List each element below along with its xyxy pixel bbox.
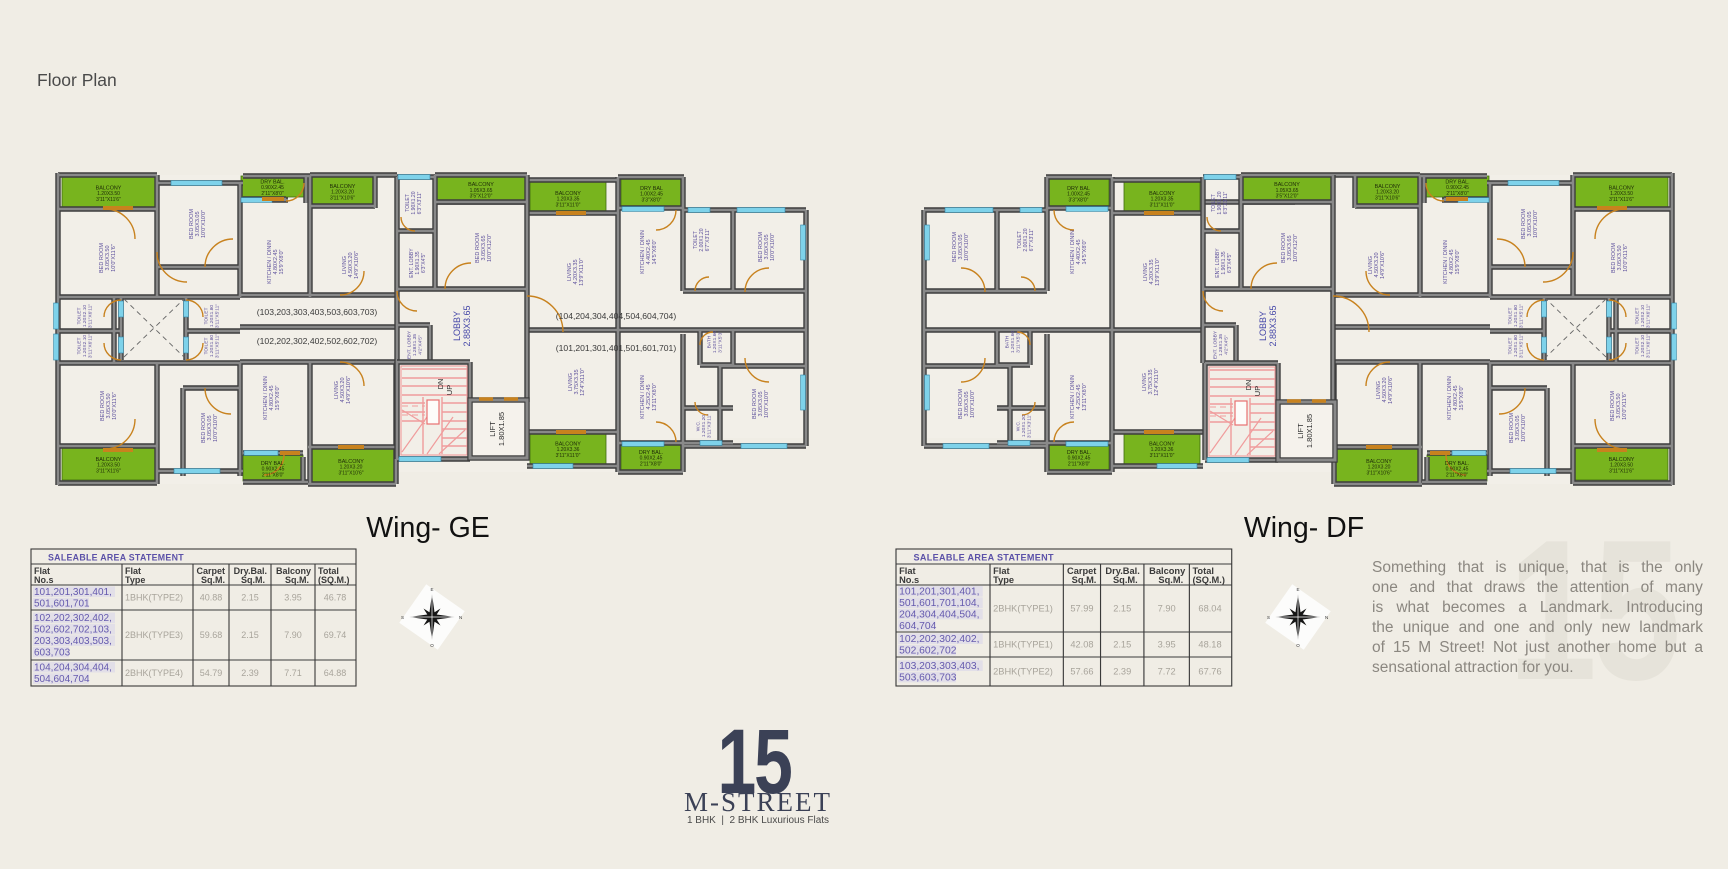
- svg-text:TOILET: TOILET: [76, 307, 82, 324]
- svg-text:1.80X1.85: 1.80X1.85: [1305, 414, 1314, 448]
- svg-text:LIFT: LIFT: [1296, 423, 1305, 439]
- svg-text:7.90: 7.90: [1158, 604, 1176, 614]
- svg-text:10'0"X10'0": 10'0"X10'0": [213, 414, 219, 442]
- svg-text:LOBBY: LOBBY: [1258, 311, 1268, 341]
- svg-text:TOILET: TOILET: [1634, 307, 1640, 324]
- svg-text:No.s: No.s: [899, 575, 919, 585]
- svg-text:3'11"X5'11": 3'11"X5'11": [215, 304, 221, 328]
- svg-text:3.95: 3.95: [1158, 640, 1176, 650]
- svg-text:LIVING: LIVING: [1143, 263, 1149, 281]
- svg-text:BED ROOM: BED ROOM: [1509, 413, 1515, 443]
- svg-text:3'11"X11'0": 3'11"X11'0": [556, 453, 581, 459]
- svg-text:3'11"X11'6": 3'11"X11'6": [96, 468, 121, 474]
- svg-text:3.05X3.05: 3.05X3.05: [764, 234, 770, 259]
- svg-text:DN: DN: [1244, 380, 1253, 391]
- svg-text:3.05X3.50: 3.05X3.50: [105, 245, 111, 270]
- svg-text:BED ROOM: BED ROOM: [100, 391, 106, 421]
- svg-text:1.20X2.10: 1.20X2.10: [82, 305, 88, 328]
- svg-text:2'11"X8'0": 2'11"X8'0": [1446, 472, 1469, 478]
- svg-text:3'11"X6'11": 3'11"X6'11": [88, 334, 94, 358]
- svg-text:69.74: 69.74: [324, 630, 347, 640]
- svg-text:3.05X3.50: 3.05X3.50: [1617, 245, 1623, 270]
- svg-text:67.76: 67.76: [1198, 667, 1221, 677]
- svg-text:3'11"X3'11": 3'11"X3'11": [1027, 414, 1033, 438]
- svg-text:SALEABLE AREA STATEMENT: SALEABLE AREA STATEMENT: [48, 553, 184, 563]
- svg-text:501,601,701,104,: 501,601,701,104,: [899, 598, 979, 609]
- svg-text:4'2"X4'5": 4'2"X4'5": [1224, 335, 1230, 355]
- svg-text:14'9"X10'6": 14'9"X10'6": [354, 251, 360, 279]
- svg-text:13'11"X8'0": 13'11"X8'0": [1082, 383, 1088, 411]
- svg-text:12'4"X11'0": 12'4"X11'0": [580, 368, 586, 396]
- svg-text:6'7"X3'11": 6'7"X3'11": [1029, 228, 1035, 251]
- svg-text:12'4"X11'0": 12'4"X11'0": [1154, 368, 1160, 396]
- svg-text:3'11"X10'6": 3'11"X10'6": [338, 470, 363, 476]
- svg-text:10'0"X10'0": 10'0"X10'0": [770, 233, 776, 261]
- svg-text:1.20X1.20: 1.20X1.20: [701, 415, 707, 438]
- svg-text:BED ROOM: BED ROOM: [201, 413, 207, 443]
- svg-text:57.99: 57.99: [1070, 604, 1093, 614]
- svg-text:13'9"X11'0": 13'9"X11'0": [1155, 258, 1161, 286]
- svg-text:4.80X2.45: 4.80X2.45: [1453, 385, 1459, 410]
- svg-text:1.20X2.10: 1.20X2.10: [1640, 305, 1646, 328]
- svg-text:2.39: 2.39: [241, 668, 259, 678]
- svg-text:14'9"X10'6": 14'9"X10'6": [346, 376, 352, 404]
- svg-text:TOILET: TOILET: [1507, 307, 1513, 324]
- svg-text:3'11"X11'0": 3'11"X11'0": [556, 202, 581, 208]
- svg-text:2BHK(TYPE1): 2BHK(TYPE1): [993, 604, 1053, 614]
- svg-text:2'11"X8'0": 2'11"X8'0": [1068, 461, 1091, 467]
- svg-text:10'0"X11'6": 10'0"X11'6": [1623, 244, 1629, 272]
- svg-text:3.05X3.65: 3.05X3.65: [481, 235, 487, 260]
- svg-text:1.20X1.60: 1.20X1.60: [712, 331, 718, 354]
- svg-text:LIVING: LIVING: [1376, 381, 1382, 399]
- svg-text:3'11"X5'11": 3'11"X5'11": [215, 334, 221, 358]
- svg-text:3'5"X12'0": 3'5"X12'0": [470, 194, 493, 200]
- svg-text:N: N: [1325, 615, 1328, 620]
- svg-text:1BHK(TYPE1): 1BHK(TYPE1): [993, 640, 1053, 650]
- svg-text:10'0"X10'0": 10'0"X10'0": [764, 390, 770, 418]
- svg-text:14'9"X10'6": 14'9"X10'6": [1388, 376, 1394, 404]
- svg-text:4.40X2.45: 4.40X2.45: [646, 239, 652, 264]
- svg-text:2.15: 2.15: [241, 630, 259, 640]
- svg-text:E: E: [1296, 587, 1299, 592]
- svg-text:1.20X1.60: 1.20X1.60: [1010, 331, 1016, 354]
- svg-text:1.80X1.85: 1.80X1.85: [497, 412, 506, 446]
- svg-text:13'11"X8'0": 13'11"X8'0": [652, 383, 658, 411]
- svg-text:3.05X3.05: 3.05X3.05: [207, 415, 213, 440]
- svg-text:KITCHEN / DININ: KITCHEN / DININ: [1070, 230, 1076, 274]
- svg-text:501,601,701: 501,601,701: [34, 598, 90, 609]
- svg-text:10'0"X10'0": 10'0"X10'0": [1533, 210, 1539, 238]
- svg-text:Sq.M.: Sq.M.: [285, 575, 309, 585]
- svg-text:4.50X3.20: 4.50X3.20: [1382, 377, 1388, 402]
- svg-text:(101,201,301,401,501,601,701): (101,201,301,401,501,601,701): [556, 343, 677, 353]
- svg-text:4.25X2.45: 4.25X2.45: [646, 384, 652, 409]
- svg-text:Sq.M.: Sq.M.: [1158, 575, 1183, 585]
- svg-text:3'11"X10'6": 3'11"X10'6": [330, 195, 355, 201]
- svg-text:6'7"X3'11": 6'7"X3'11": [705, 228, 711, 251]
- svg-text:3'11"X6'11": 3'11"X6'11": [1646, 304, 1652, 328]
- svg-text:KITCHEN / DININ: KITCHEN / DININ: [263, 376, 269, 420]
- svg-text:3'11"X5'11": 3'11"X5'11": [1519, 304, 1525, 328]
- svg-text:3.05X3.05: 3.05X3.05: [1527, 211, 1533, 236]
- svg-text:48.18: 48.18: [1198, 640, 1221, 650]
- svg-text:10'0"X10'0": 10'0"X10'0": [970, 390, 976, 418]
- svg-text:502,602,702: 502,602,702: [899, 646, 957, 657]
- svg-text:3'11"X3'11": 3'11"X3'11": [707, 414, 713, 438]
- svg-text:2.15: 2.15: [1113, 604, 1131, 614]
- svg-text:103,203,303,403,: 103,203,303,403,: [899, 661, 979, 672]
- svg-text:ENT. LOBBY: ENT. LOBBY: [1212, 330, 1218, 359]
- svg-text:No.s: No.s: [34, 575, 54, 585]
- svg-text:4.20X3.35: 4.20X3.35: [1149, 259, 1155, 284]
- svg-text:LIVING: LIVING: [342, 256, 348, 274]
- svg-text:3'11"X10'6": 3'11"X10'6": [1366, 470, 1391, 476]
- svg-text:W.C.: W.C.: [1015, 421, 1021, 432]
- svg-text:102,202,302,402,: 102,202,302,402,: [34, 613, 112, 624]
- svg-text:1.20X2.10: 1.20X2.10: [82, 335, 88, 358]
- svg-text:2BHK(TYPE2): 2BHK(TYPE2): [993, 667, 1053, 677]
- svg-text:UP: UP: [1253, 386, 1262, 396]
- svg-text:O: O: [430, 643, 434, 648]
- svg-text:6'3"X3'11": 6'3"X3'11": [1223, 191, 1229, 214]
- svg-text:TOILET: TOILET: [203, 337, 209, 354]
- svg-text:14'5"X8'0": 14'5"X8'0": [652, 239, 658, 264]
- svg-text:1.20X2.10: 1.20X2.10: [1640, 335, 1646, 358]
- svg-text:UP: UP: [445, 385, 454, 395]
- svg-text:LOBBY: LOBBY: [452, 311, 462, 341]
- svg-text:KITCHEN / DININ: KITCHEN / DININ: [1447, 376, 1453, 420]
- svg-text:1.28X1.35: 1.28X1.35: [412, 334, 418, 357]
- svg-text:4.80X2.45: 4.80X2.45: [273, 249, 279, 274]
- svg-text:64.88: 64.88: [324, 668, 347, 678]
- svg-text:10'0"X11'6": 10'0"X11'6": [1622, 392, 1628, 420]
- svg-text:3.75X3.35: 3.75X3.35: [1148, 369, 1154, 394]
- svg-text:O: O: [1296, 643, 1300, 648]
- svg-text:3'5"X12'0": 3'5"X12'0": [1276, 194, 1299, 200]
- svg-text:7.72: 7.72: [1158, 667, 1176, 677]
- svg-text:3'11"X11'0": 3'11"X11'0": [1150, 453, 1175, 459]
- svg-text:LIVING: LIVING: [567, 263, 573, 281]
- svg-text:3'11"X11'0": 3'11"X11'0": [1150, 202, 1175, 208]
- svg-text:KITCHEN / DININ: KITCHEN / DININ: [1443, 240, 1449, 284]
- svg-text:BATH: BATH: [1004, 335, 1010, 348]
- svg-text:4.80X2.45: 4.80X2.45: [269, 385, 275, 410]
- svg-text:2'11"X8'0": 2'11"X8'0": [1446, 191, 1469, 197]
- svg-text:1.20X1.80: 1.20X1.80: [209, 335, 215, 358]
- svg-text:7.71: 7.71: [284, 668, 302, 678]
- svg-text:(104,204,304,404,504,604,704): (104,204,304,404,504,604,704): [556, 311, 677, 321]
- svg-text:604,704: 604,704: [899, 621, 937, 632]
- svg-text:10'0"X11'6": 10'0"X11'6": [111, 244, 117, 272]
- svg-text:203,303,403,503,: 203,303,403,503,: [34, 636, 112, 647]
- svg-text:3'11"X10'6": 3'11"X10'6": [1375, 195, 1400, 201]
- svg-text:BED ROOM: BED ROOM: [1281, 233, 1287, 263]
- svg-text:BED ROOM: BED ROOM: [1611, 243, 1617, 273]
- svg-text:2BHK(TYPE4): 2BHK(TYPE4): [125, 668, 183, 678]
- svg-text:40.88: 40.88: [200, 593, 223, 603]
- svg-text:3'11"X6'11": 3'11"X6'11": [88, 304, 94, 328]
- svg-text:57.66: 57.66: [1070, 667, 1093, 677]
- svg-text:1.28X1.35: 1.28X1.35: [1218, 334, 1224, 357]
- svg-text:7.90: 7.90: [284, 630, 302, 640]
- svg-text:3.05X3.05: 3.05X3.05: [958, 234, 964, 259]
- svg-text:KITCHEN / DININ: KITCHEN / DININ: [1070, 375, 1076, 419]
- svg-text:3'3"X8'0": 3'3"X8'0": [1069, 197, 1089, 203]
- svg-text:3.05X3.50: 3.05X3.50: [1616, 393, 1622, 418]
- svg-text:BED ROOM: BED ROOM: [758, 232, 764, 262]
- svg-text:4.50X3.20: 4.50X3.20: [348, 252, 354, 277]
- svg-text:Type: Type: [125, 575, 145, 585]
- svg-text:15'9"X8'0": 15'9"X8'0": [279, 249, 285, 274]
- svg-text:4.25X2.45: 4.25X2.45: [1076, 384, 1082, 409]
- svg-text:15'9"X8'0": 15'9"X8'0": [275, 385, 281, 410]
- svg-text:4.50X3.20: 4.50X3.20: [340, 377, 346, 402]
- svg-text:3.95: 3.95: [284, 593, 302, 603]
- svg-text:13'9"X11'0": 13'9"X11'0": [579, 258, 585, 286]
- svg-text:10'0"X10'0": 10'0"X10'0": [964, 233, 970, 261]
- svg-text:W.C.: W.C.: [695, 421, 701, 432]
- svg-text:101,201,301,401,: 101,201,301,401,: [34, 587, 112, 598]
- svg-text:2.88X3.65: 2.88X3.65: [1268, 305, 1278, 346]
- svg-text:3.05X3.50: 3.05X3.50: [106, 393, 112, 418]
- svg-text:(103,203,303,403,503,603,703): (103,203,303,403,503,603,703): [257, 307, 378, 317]
- svg-text:42.08: 42.08: [1070, 640, 1093, 650]
- svg-text:S: S: [401, 615, 404, 620]
- svg-text:6'3"X4'5": 6'3"X4'5": [1227, 253, 1233, 273]
- svg-text:4'2"X4'5": 4'2"X4'5": [418, 335, 424, 355]
- svg-text:(SQ.M.): (SQ.M.): [318, 575, 350, 585]
- svg-text:LIVING: LIVING: [568, 373, 574, 391]
- svg-text:Sq.M.: Sq.M.: [1113, 575, 1138, 585]
- svg-text:(SQ.M.): (SQ.M.): [1192, 575, 1224, 585]
- svg-text:10'0"X10'0": 10'0"X10'0": [201, 210, 207, 238]
- svg-text:3'3"X8'0": 3'3"X8'0": [642, 197, 662, 203]
- svg-text:N: N: [459, 615, 462, 620]
- svg-text:15'9"X8'0": 15'9"X8'0": [1455, 249, 1461, 274]
- svg-text:502,602,702,103,: 502,602,702,103,: [34, 625, 112, 636]
- svg-text:Sq.M.: Sq.M.: [1072, 575, 1097, 585]
- svg-text:2'11"X8'0": 2'11"X8'0": [640, 461, 663, 467]
- svg-text:Sq.M.: Sq.M.: [201, 575, 225, 585]
- svg-text:6'3"X3'11": 6'3"X3'11": [417, 191, 423, 214]
- svg-text:204,304,404,504,: 204,304,404,504,: [899, 610, 979, 621]
- svg-text:3.05X3.05: 3.05X3.05: [1515, 415, 1521, 440]
- svg-text:2.15: 2.15: [1113, 640, 1131, 650]
- svg-text:BED ROOM: BED ROOM: [952, 232, 958, 262]
- svg-text:1.20X1.80: 1.20X1.80: [209, 305, 215, 328]
- svg-text:4.50X3.20: 4.50X3.20: [1374, 252, 1380, 277]
- svg-text:3'11"X11'6": 3'11"X11'6": [1609, 468, 1634, 474]
- svg-text:Type: Type: [993, 575, 1014, 585]
- svg-text:2.39: 2.39: [1113, 667, 1131, 677]
- svg-text:BED ROOM: BED ROOM: [99, 243, 105, 273]
- svg-text:1.20X1.20: 1.20X1.20: [1021, 415, 1027, 438]
- svg-text:LIFT: LIFT: [488, 421, 497, 437]
- svg-text:503,603,703: 503,603,703: [899, 673, 957, 684]
- svg-text:14'9"X10'6": 14'9"X10'6": [1380, 251, 1386, 279]
- svg-text:102,202,302,402,: 102,202,302,402,: [899, 634, 979, 645]
- svg-text:504,604,704: 504,604,704: [34, 674, 90, 685]
- svg-text:BED ROOM: BED ROOM: [1610, 391, 1616, 421]
- svg-text:S: S: [1267, 615, 1270, 620]
- svg-text:TOILET: TOILET: [1634, 337, 1640, 354]
- svg-text:3.05X3.05: 3.05X3.05: [758, 391, 764, 416]
- svg-text:(102,202,302,402,502,602,702): (102,202,302,402,502,602,702): [257, 336, 378, 346]
- svg-text:E: E: [430, 587, 433, 592]
- svg-text:3.05X3.05: 3.05X3.05: [195, 211, 201, 236]
- svg-text:54.79: 54.79: [200, 668, 223, 678]
- svg-text:KITCHEN / DININ: KITCHEN / DININ: [267, 240, 273, 284]
- svg-text:3'11"X11'6": 3'11"X11'6": [96, 197, 121, 203]
- svg-text:3.05X3.65: 3.05X3.65: [1287, 235, 1293, 260]
- svg-text:603,703: 603,703: [34, 647, 71, 658]
- svg-text:BED ROOM: BED ROOM: [1521, 209, 1527, 239]
- svg-text:BED ROOM: BED ROOM: [475, 233, 481, 263]
- svg-text:2BHK(TYPE3): 2BHK(TYPE3): [125, 630, 183, 640]
- svg-text:6'3"X4'5": 6'3"X4'5": [421, 253, 427, 273]
- svg-text:10'0"X12'0": 10'0"X12'0": [1293, 234, 1299, 262]
- svg-text:4.40X2.45: 4.40X2.45: [1076, 239, 1082, 264]
- svg-text:1BHK(TYPE2): 1BHK(TYPE2): [125, 593, 183, 603]
- svg-text:LIVING: LIVING: [1368, 256, 1374, 274]
- svg-text:68.04: 68.04: [1198, 604, 1221, 614]
- svg-text:LIVING: LIVING: [1142, 373, 1148, 391]
- svg-text:BED ROOM: BED ROOM: [958, 389, 964, 419]
- svg-text:LIVING: LIVING: [334, 381, 340, 399]
- svg-text:104,204,304,404,: 104,204,304,404,: [34, 663, 112, 674]
- svg-text:TOILET: TOILET: [76, 337, 82, 354]
- svg-text:1.20X1.80: 1.20X1.80: [1513, 305, 1519, 328]
- svg-text:KITCHEN / DININ: KITCHEN / DININ: [640, 375, 646, 419]
- svg-text:TOILET: TOILET: [203, 307, 209, 324]
- svg-text:BED ROOM: BED ROOM: [189, 209, 195, 239]
- svg-text:Sq.M.: Sq.M.: [241, 575, 265, 585]
- svg-text:3'11"X5'11": 3'11"X5'11": [1519, 334, 1525, 358]
- svg-text:4.80X2.45: 4.80X2.45: [1449, 249, 1455, 274]
- svg-text:TOILET: TOILET: [1507, 337, 1513, 354]
- svg-text:BED ROOM: BED ROOM: [752, 389, 758, 419]
- svg-text:10'0"X10'0": 10'0"X10'0": [1521, 414, 1527, 442]
- svg-text:3'11"X5'3": 3'11"X5'3": [1016, 331, 1022, 353]
- svg-text:2.88X3.65: 2.88X3.65: [462, 305, 472, 346]
- svg-text:BATH: BATH: [706, 335, 712, 348]
- svg-text:14'5"X8'0": 14'5"X8'0": [1082, 239, 1088, 264]
- svg-text:101,201,301,401,: 101,201,301,401,: [899, 587, 979, 598]
- svg-text:SALEABLE AREA STATEMENT: SALEABLE AREA STATEMENT: [914, 553, 1055, 563]
- svg-text:3.05X3.05: 3.05X3.05: [964, 391, 970, 416]
- svg-text:46.78: 46.78: [324, 593, 347, 603]
- svg-text:3.75X3.35: 3.75X3.35: [574, 369, 580, 394]
- svg-text:3'11"X11'6": 3'11"X11'6": [1609, 197, 1634, 203]
- svg-text:2.15: 2.15: [241, 593, 259, 603]
- svg-text:3'11"X6'11": 3'11"X6'11": [1646, 334, 1652, 358]
- svg-text:DN: DN: [436, 379, 445, 390]
- svg-text:KITCHEN / DININ: KITCHEN / DININ: [640, 230, 646, 274]
- svg-text:2'11"X8'0": 2'11"X8'0": [262, 472, 285, 478]
- svg-text:2'11"X8'0": 2'11"X8'0": [261, 191, 284, 197]
- svg-text:10'0"X11'6": 10'0"X11'6": [112, 392, 118, 420]
- svg-text:4.20X3.35: 4.20X3.35: [573, 259, 579, 284]
- svg-text:1.20X1.80: 1.20X1.80: [1513, 335, 1519, 358]
- svg-text:ENT. LOBBY: ENT. LOBBY: [406, 330, 412, 359]
- svg-text:15'9"X8'0": 15'9"X8'0": [1459, 385, 1465, 410]
- svg-text:10'0"X12'0": 10'0"X12'0": [487, 234, 493, 262]
- svg-text:59.68: 59.68: [200, 630, 223, 640]
- svg-text:3'11"X5'3": 3'11"X5'3": [718, 331, 724, 353]
